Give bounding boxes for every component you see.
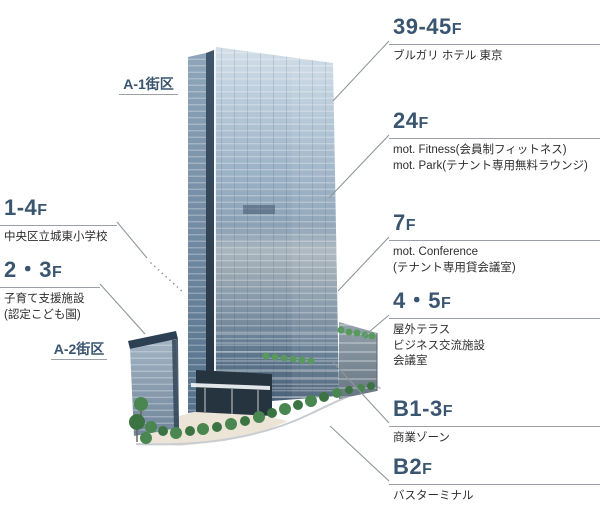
label-39-45f-floor: 39-45F — [389, 14, 600, 43]
leader-1-4f-dotted — [151, 263, 184, 293]
tower-base-entrance — [191, 370, 272, 416]
label-rule — [389, 44, 600, 45]
label-b2f: B2F バスターミナル — [389, 454, 600, 505]
label-4-5f-desc: ビジネス交流施設 — [393, 339, 600, 355]
leader-b2f — [330, 426, 389, 481]
label-7f: 7F mot. Conference (テナント専用貸会議室) — [389, 210, 600, 276]
floor-number: 24 — [393, 108, 418, 133]
floor-number: B1-3 — [393, 396, 443, 421]
label-24f: 24F mot. Fitness(会員制フィットネス) mot. Park(テナ… — [389, 108, 600, 174]
floor-suffix: F — [443, 403, 453, 420]
leader-1-4f-solid — [117, 222, 147, 258]
label-2-3f-desc: (認定こども園) — [4, 308, 100, 324]
label-4-5f-desc: 屋外テラス — [393, 323, 600, 339]
label-rule — [389, 138, 600, 139]
floor-suffix: F — [452, 21, 462, 38]
floor-suffix: F — [418, 115, 428, 132]
label-4-5f-floor: 4・5F — [389, 288, 600, 317]
floor-number: 7 — [393, 210, 406, 235]
label-2-3f-desc: 子育て支援施設 — [4, 292, 100, 308]
label-39-45f: 39-45F ブルガリ ホテル 東京 — [389, 14, 600, 65]
label-b1-3f-floor: B1-3F — [389, 396, 600, 425]
label-4-5f: 4・5F 屋外テラス ビジネス交流施設 会議室 — [389, 288, 600, 370]
floor-suffix: F — [422, 461, 432, 478]
label-rule — [389, 426, 600, 427]
leader-24f — [329, 135, 389, 198]
floor-number: 4・5 — [393, 288, 441, 313]
label-1-4f-floor: 1-4F — [0, 195, 117, 224]
floor-suffix: F — [406, 217, 416, 234]
label-2-3f: 2・3F 子育て支援施設 (認定こども園) — [0, 257, 100, 323]
label-1-4f-desc: 中央区立城東小学校 — [4, 230, 117, 246]
floor-number: 39-45 — [393, 14, 452, 39]
label-rule — [389, 240, 600, 241]
label-39-45f-desc: ブルガリ ホテル 東京 — [393, 49, 600, 65]
block-label-a2: A-2街区 — [51, 342, 107, 360]
leader-7f — [338, 237, 389, 291]
floor-number: B2 — [393, 454, 422, 479]
leader-39-45f — [333, 41, 389, 101]
floor-number: 1-4 — [4, 195, 37, 220]
label-b2f-floor: B2F — [389, 454, 600, 483]
label-b1-3f-desc: 商業ゾーン — [393, 431, 600, 447]
floor-suffix: F — [441, 295, 451, 312]
label-24f-desc: mot. Fitness(会員制フィットネス) — [393, 143, 600, 159]
label-7f-floor: 7F — [389, 210, 600, 239]
label-2-3f-floor: 2・3F — [0, 257, 100, 286]
label-24f-floor: 24F — [389, 108, 600, 137]
label-rule — [0, 225, 117, 226]
floor-suffix: F — [37, 202, 47, 219]
leader-2-3f — [100, 284, 145, 334]
label-24f-desc: mot. Park(テナント専用無料ラウンジ) — [393, 159, 600, 175]
floor-guide-diagram: A-1街区 A-2街区 1-4F 中央区立城東小学校 2・3F 子育て支援施設 … — [0, 0, 600, 525]
label-b1-3f: B1-3F 商業ゾーン — [389, 396, 600, 447]
label-7f-desc: (テナント専用貸会議室) — [393, 261, 600, 277]
label-rule — [0, 287, 100, 288]
floor-suffix: F — [52, 264, 62, 281]
floor-number: 2・3 — [4, 257, 52, 282]
label-b2f-desc: バスターミナル — [393, 489, 600, 505]
label-7f-desc: mot. Conference — [393, 245, 600, 261]
block-label-a1: A-1街区 — [119, 77, 178, 95]
label-1-4f: 1-4F 中央区立城東小学校 — [0, 195, 117, 246]
label-rule — [389, 318, 600, 319]
label-rule — [389, 484, 600, 485]
label-4-5f-desc: 会議室 — [393, 354, 600, 370]
